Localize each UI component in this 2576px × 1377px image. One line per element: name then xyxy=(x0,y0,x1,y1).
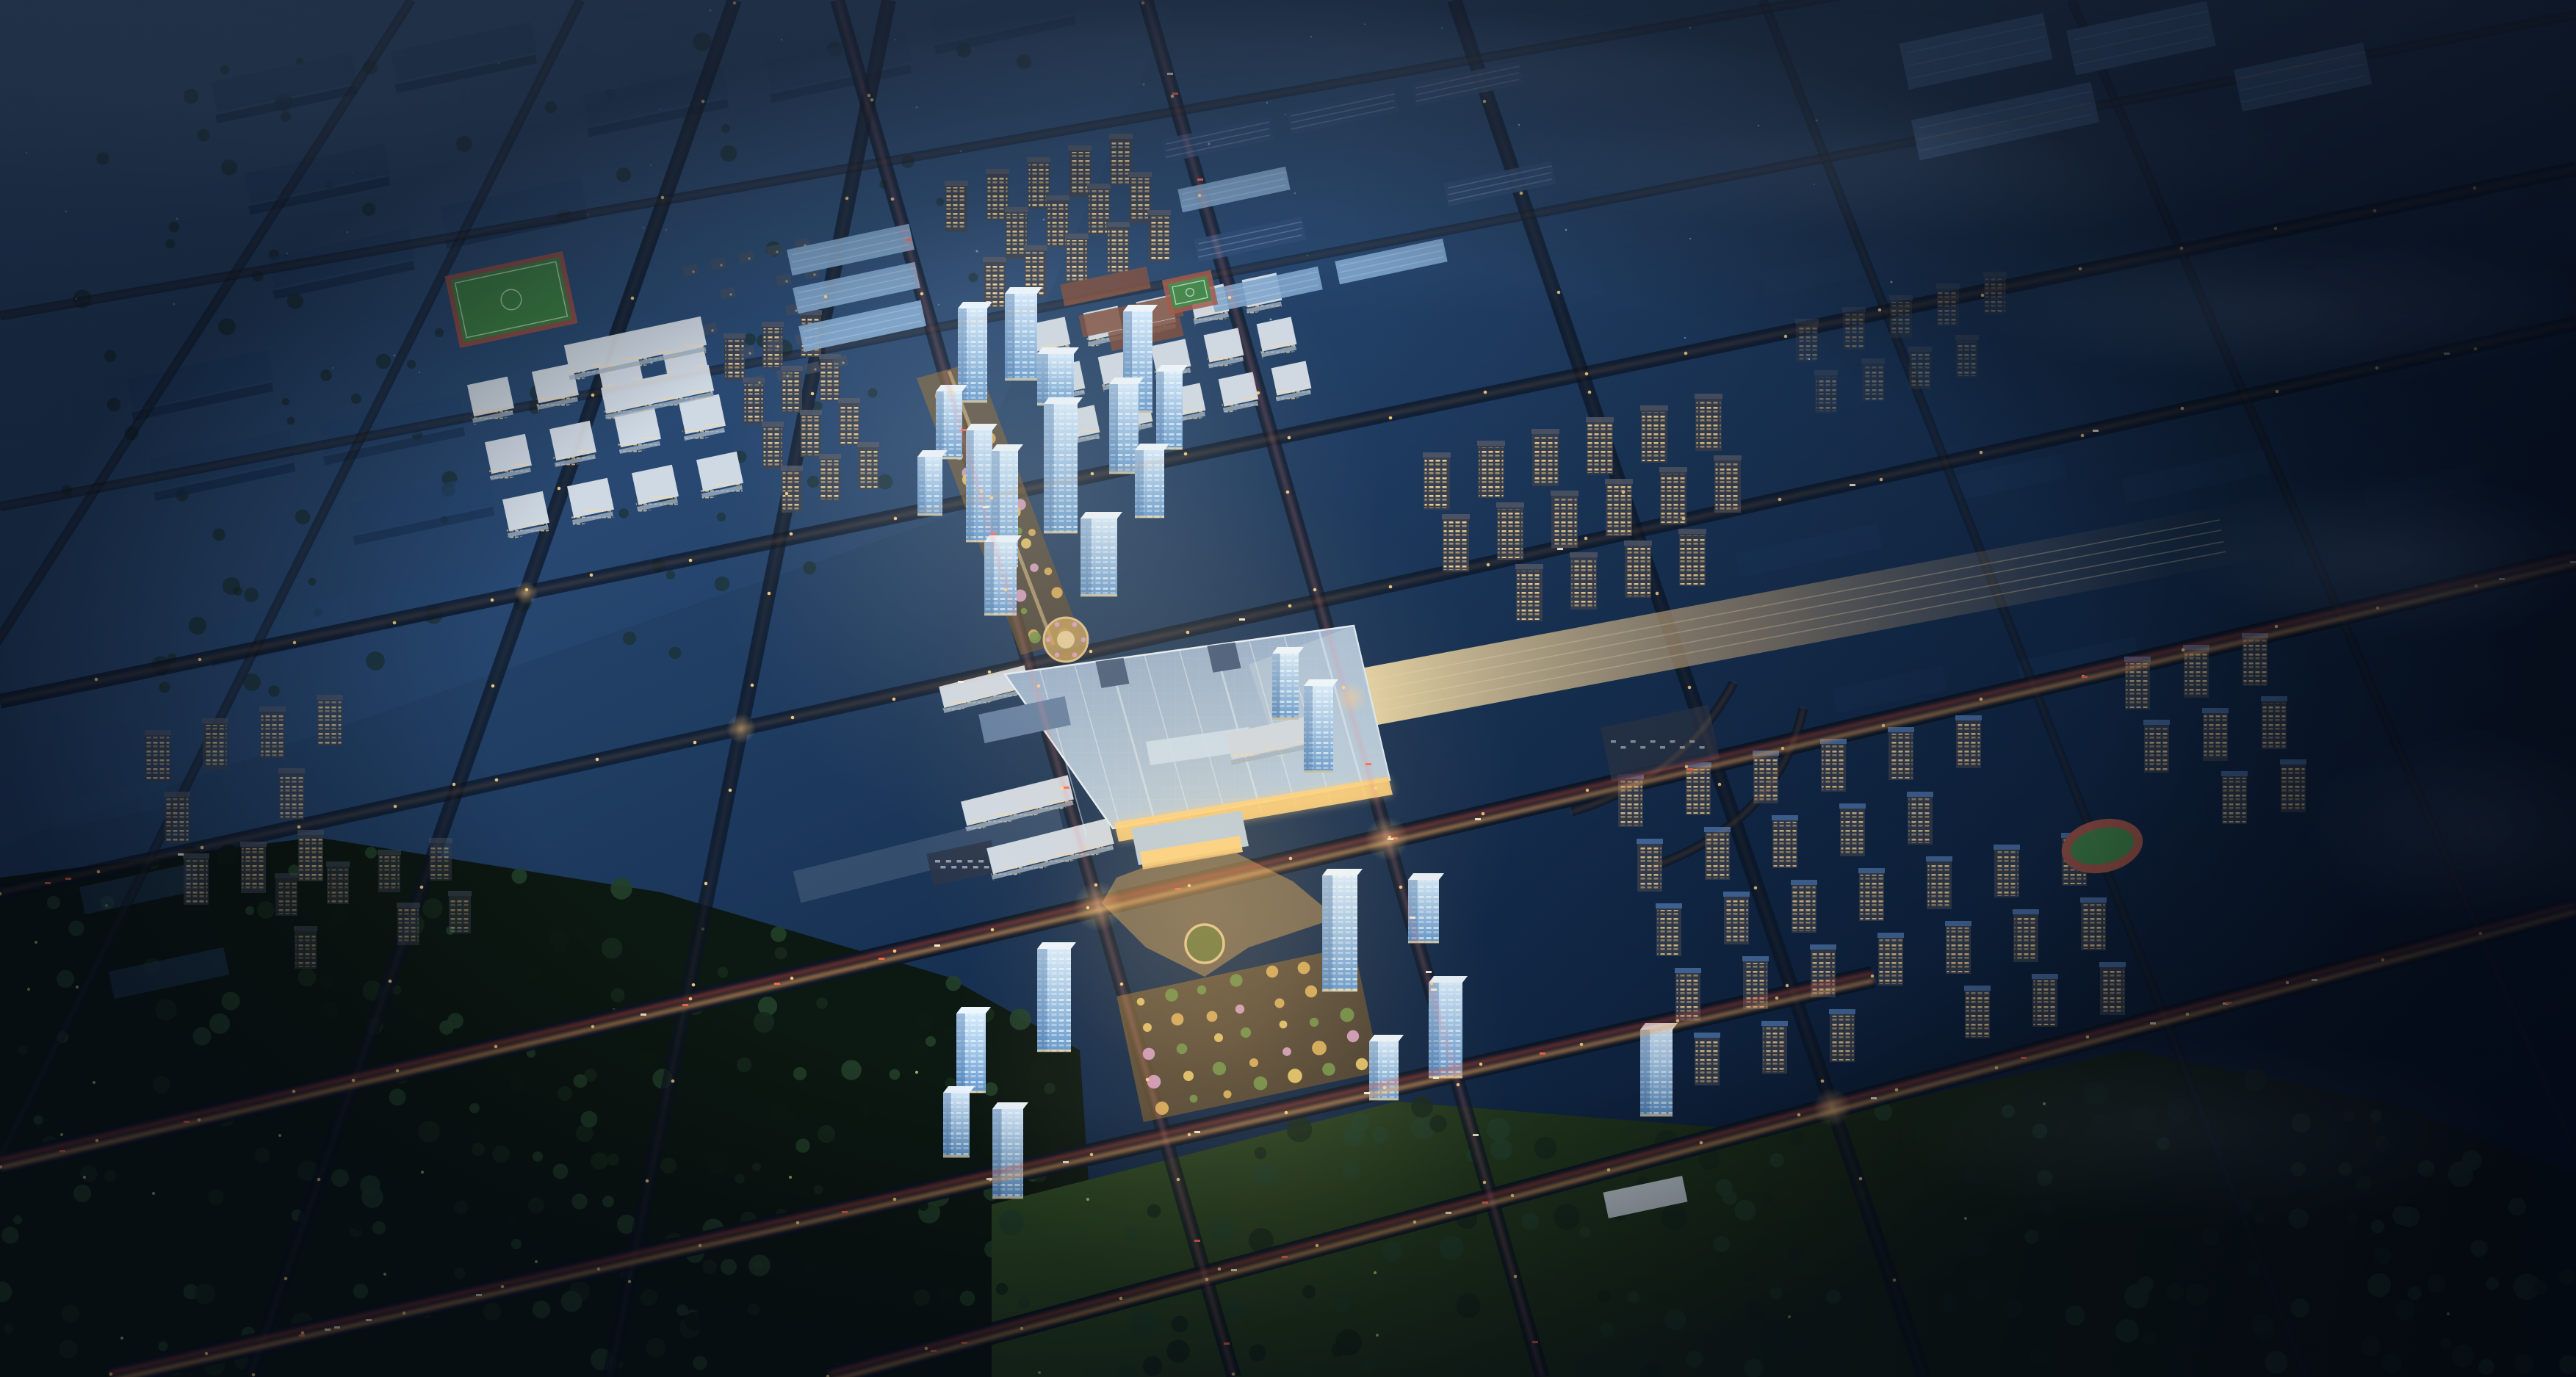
city-aerial-rendering xyxy=(0,0,2576,1377)
atmosphere xyxy=(0,0,2576,1377)
scene-svg xyxy=(0,0,2576,1377)
vignette xyxy=(0,0,2576,1377)
